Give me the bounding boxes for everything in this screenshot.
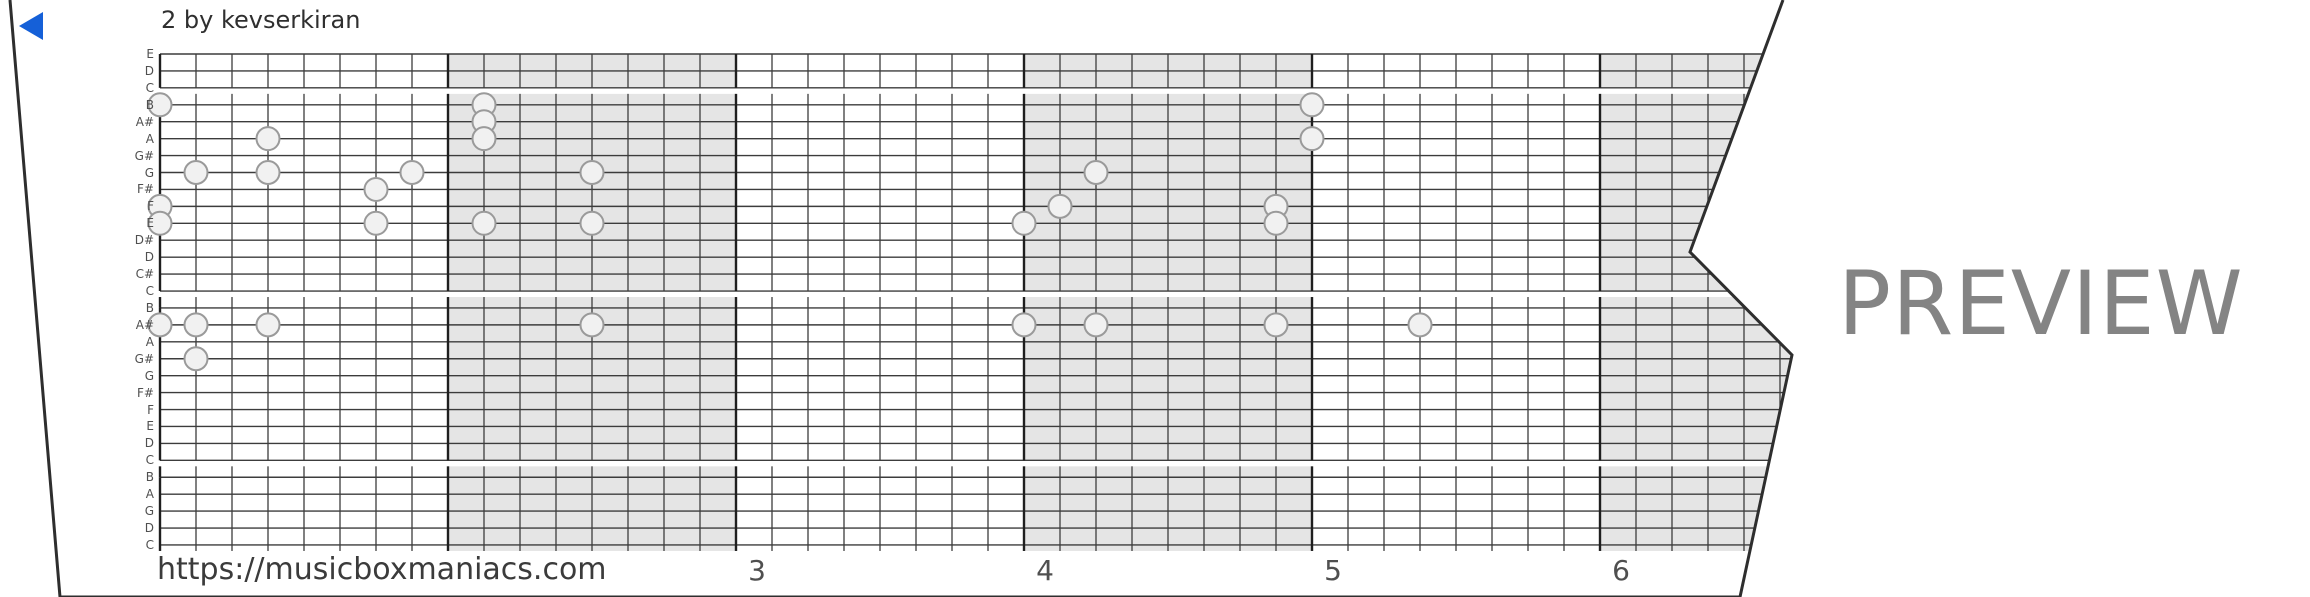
strip-paper xyxy=(10,0,1792,597)
note-circle-b[interactable] xyxy=(1301,93,1324,116)
note-circle-as[interactable] xyxy=(185,313,208,336)
row-label: F# xyxy=(94,182,154,196)
note-circle-e[interactable] xyxy=(473,212,496,235)
note-circle-g[interactable] xyxy=(581,161,604,184)
row-label: E xyxy=(94,47,154,61)
row-label: D xyxy=(94,250,154,264)
back-icon[interactable] xyxy=(19,12,43,40)
row-label: D xyxy=(94,521,154,535)
note-circle-e[interactable] xyxy=(1013,212,1036,235)
melody-title[interactable]: 2 by kevserkiran xyxy=(161,6,360,34)
row-label: G xyxy=(94,369,154,383)
measure-number: 4 xyxy=(1036,554,1054,587)
measure-number: 6 xyxy=(1612,554,1630,587)
row-label: G xyxy=(94,504,154,518)
row-label: B xyxy=(94,301,154,315)
row-label: B xyxy=(94,98,154,112)
note-circle-e[interactable] xyxy=(365,212,388,235)
note-circle-gs[interactable] xyxy=(185,347,208,370)
measure-number: 5 xyxy=(1324,554,1342,587)
row-label: A xyxy=(94,132,154,146)
note-circle-as[interactable] xyxy=(581,313,604,336)
measure-number: 3 xyxy=(748,554,766,587)
row-label: C xyxy=(94,284,154,298)
note-circle-g[interactable] xyxy=(1085,161,1108,184)
row-label: D xyxy=(94,64,154,78)
row-label: C xyxy=(94,538,154,552)
note-circle-as[interactable] xyxy=(1013,313,1036,336)
row-label: A# xyxy=(94,318,154,332)
preview-watermark: PREVIEW xyxy=(1838,252,2244,355)
row-label: C# xyxy=(94,267,154,281)
note-circle-as[interactable] xyxy=(1085,313,1108,336)
row-label: C xyxy=(94,453,154,467)
note-circle-g[interactable] xyxy=(401,161,424,184)
row-label: G xyxy=(94,166,154,180)
row-label: G# xyxy=(94,352,154,366)
row-label: A# xyxy=(94,115,154,129)
row-label: F xyxy=(94,199,154,213)
row-label: D xyxy=(94,436,154,450)
row-label: B xyxy=(94,470,154,484)
note-circle-e[interactable] xyxy=(581,212,604,235)
row-label: C xyxy=(94,81,154,95)
row-label: A xyxy=(94,487,154,501)
site-url: https://musicboxmaniacs.com xyxy=(157,552,607,587)
note-circle-a[interactable] xyxy=(1301,127,1324,150)
note-circle-e[interactable] xyxy=(1265,212,1288,235)
row-label: G# xyxy=(94,149,154,163)
note-circle-fs[interactable] xyxy=(365,178,388,201)
row-label: E xyxy=(94,216,154,230)
note-circle-as[interactable] xyxy=(257,313,280,336)
note-circle-a[interactable] xyxy=(257,127,280,150)
note-circle-g[interactable] xyxy=(257,161,280,184)
note-circle-as[interactable] xyxy=(1265,313,1288,336)
note-circle-as[interactable] xyxy=(1409,313,1432,336)
row-label: A xyxy=(94,335,154,349)
row-label: D# xyxy=(94,233,154,247)
music-box-preview-strip[interactable]: 2 by kevserkiran EDCBA#AG#GF#FED#DC#CBA#… xyxy=(0,0,2310,597)
row-label: F# xyxy=(94,386,154,400)
row-label: F xyxy=(94,403,154,417)
note-circle-g[interactable] xyxy=(185,161,208,184)
note-circle-f[interactable] xyxy=(1049,195,1072,218)
note-circle-a[interactable] xyxy=(473,127,496,150)
row-label: E xyxy=(94,419,154,433)
